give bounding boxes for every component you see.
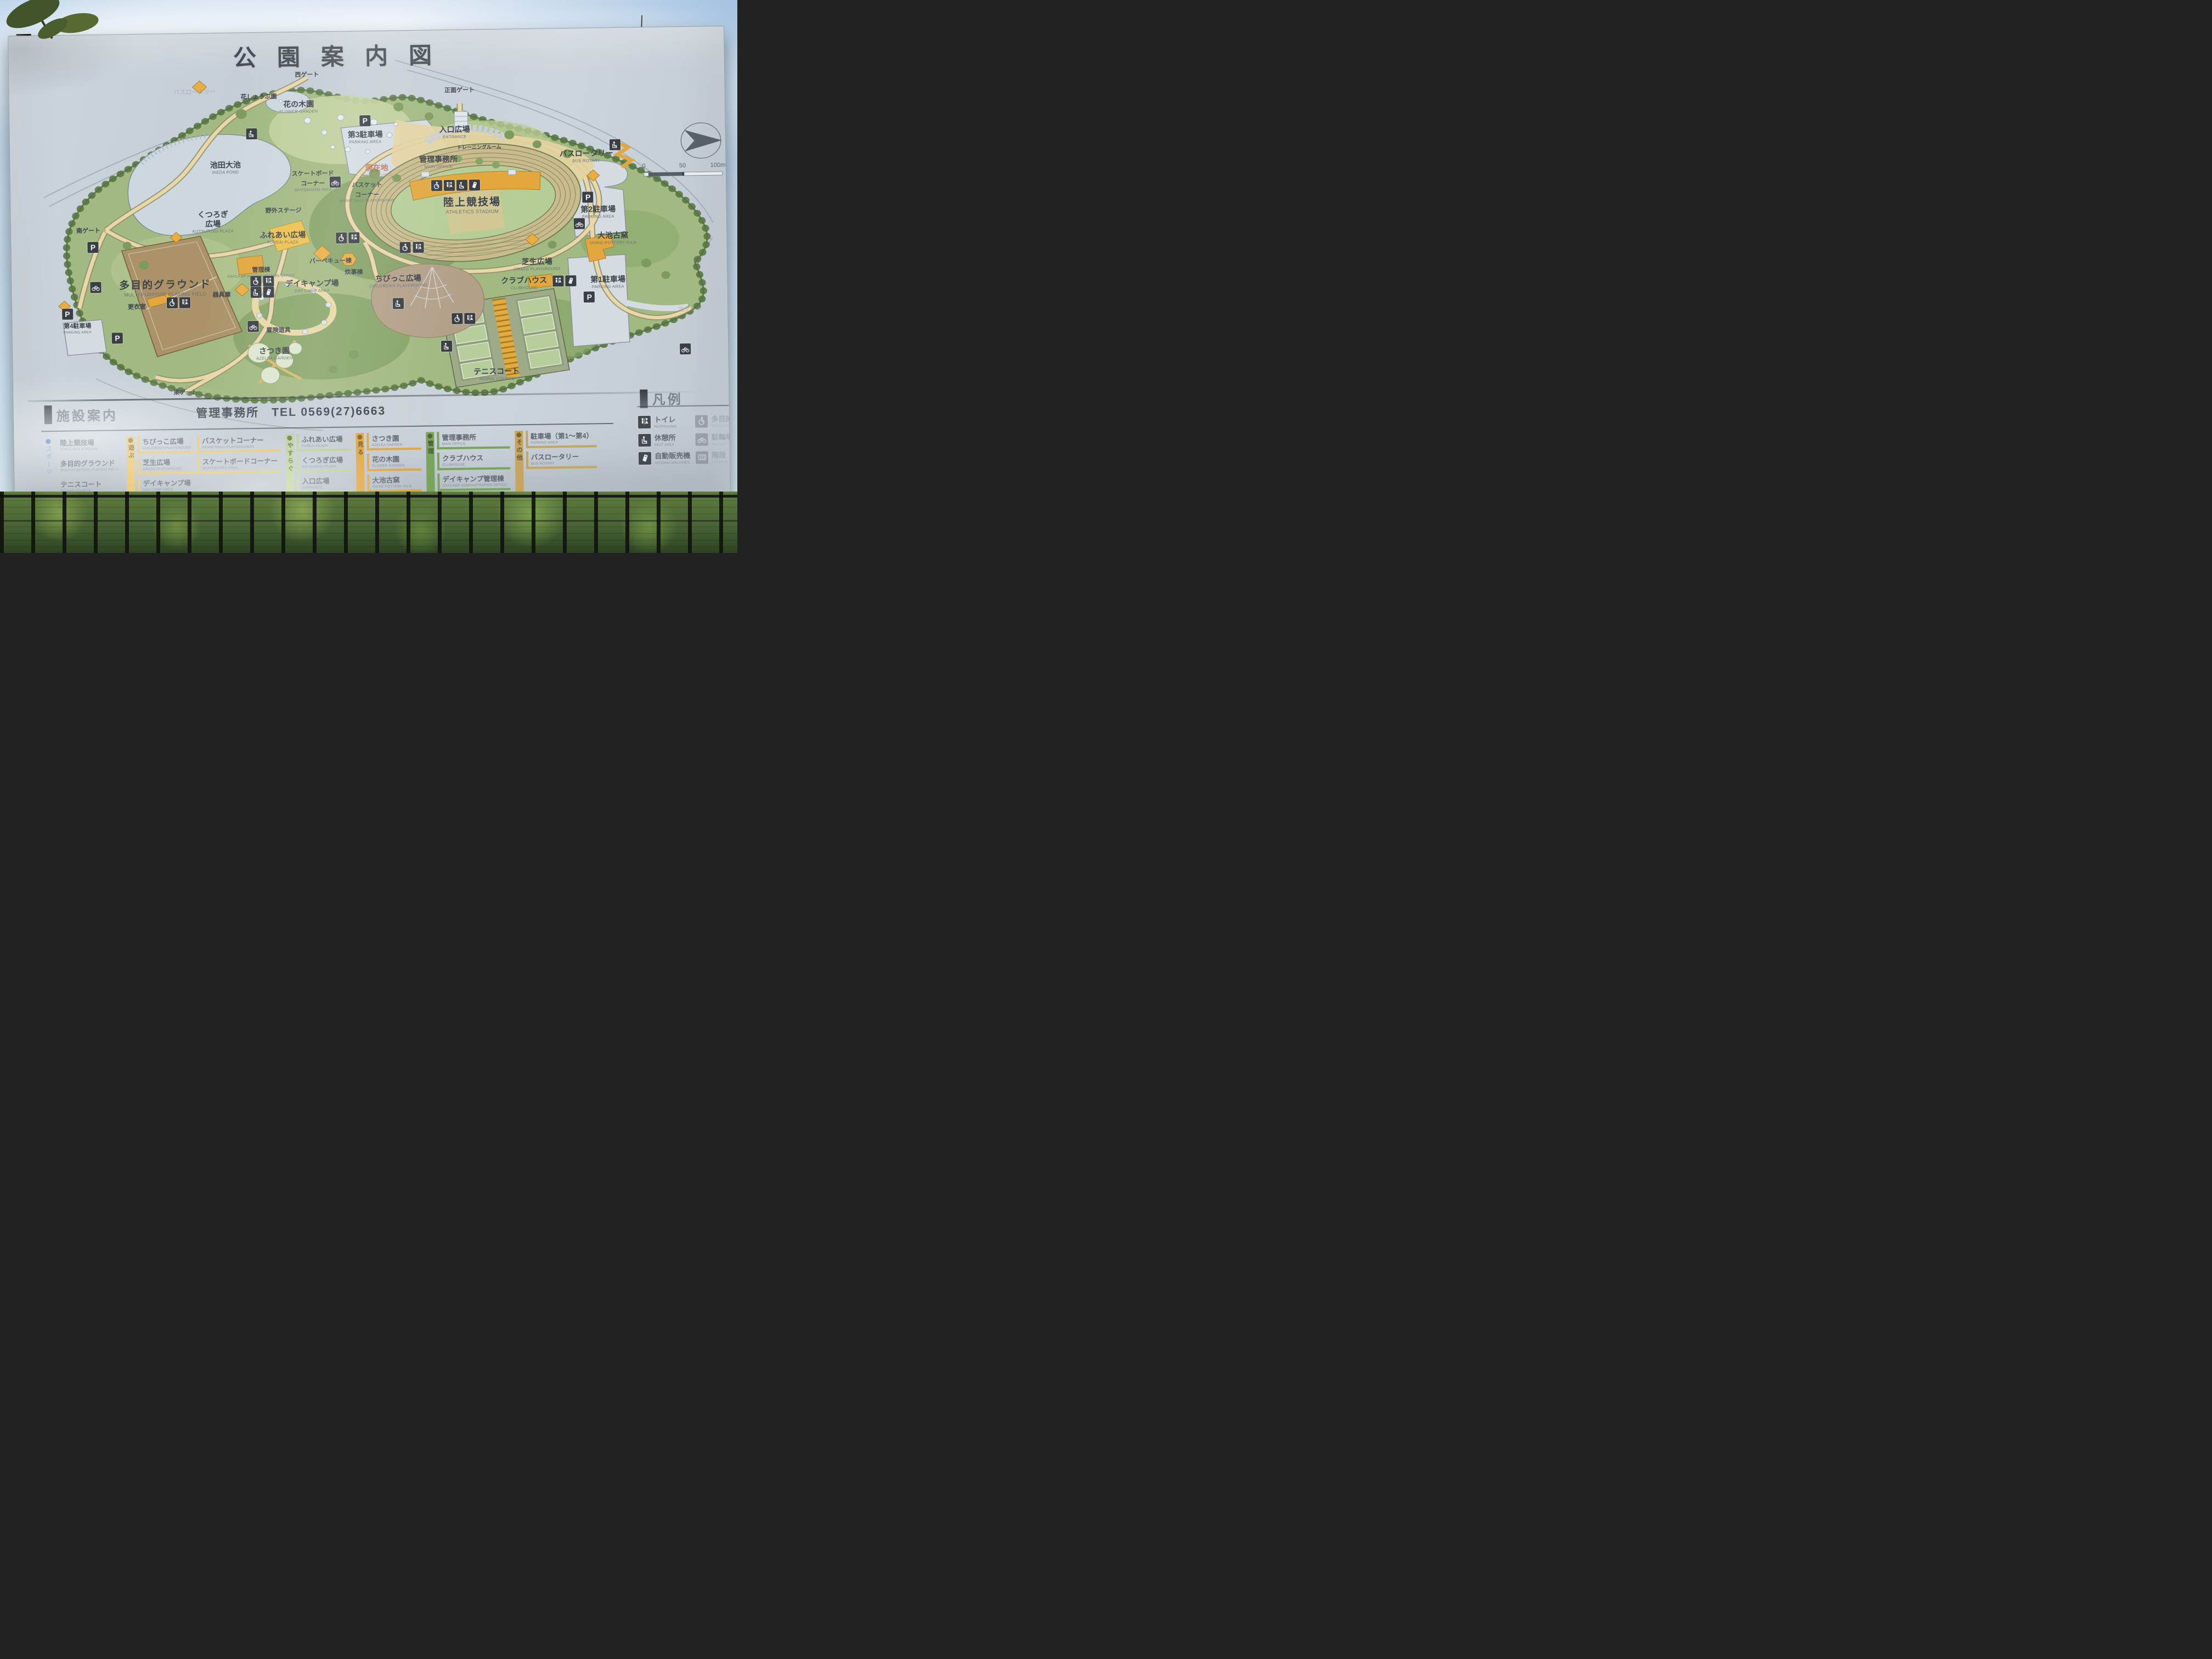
legend-item-jp: バスケットコーナー xyxy=(202,435,278,446)
label-jp: 第1駐車場 xyxy=(590,275,625,284)
legend-item-en: BASKETBALL PLAYGROUNDS xyxy=(202,445,278,450)
legend-item-jp: 陸上競技場 xyxy=(60,437,119,448)
rest-icon xyxy=(639,434,651,447)
map-label-outdoor-stage: 野外ステージ xyxy=(266,205,302,216)
map-label-pottery-kiln: 大池古窯OHIKE-POTTERY KILN xyxy=(589,230,636,245)
map-label-parking3: 第3駐車場PARKING AREA xyxy=(348,130,383,145)
sign-title: 公園案内図 xyxy=(223,37,453,74)
label-jp: 管理棟 xyxy=(252,267,270,273)
group-dot xyxy=(46,439,50,444)
group-dot xyxy=(287,436,292,441)
facility-guide-header: 施設案内 xyxy=(44,404,118,425)
label-jp: デイキャンプ場 xyxy=(285,279,339,288)
symbol-en: VENDING MACHINES xyxy=(654,461,690,465)
parking-icon: P xyxy=(583,191,594,202)
label-jp: 池田大池 xyxy=(210,160,241,170)
vending-icon xyxy=(566,275,577,286)
symbol-en: STAIRWAY xyxy=(712,460,729,464)
legend-item-en: CHILDREN'S PLAYGROUND xyxy=(143,446,191,450)
map-label-children-playground: ちびっこ広場CHILDREN'S PLAYGROUND xyxy=(369,274,427,289)
map-label-parking2: 第2駐車場PARKING AREA xyxy=(580,204,616,219)
wheelchair-icon xyxy=(695,415,708,427)
scale-label-mid: 50 xyxy=(679,162,686,169)
legend-group-やすらぐ: やすらぐふれあい広場FUREAI PLAZAくつろぎ広場KUTSUROGI PL… xyxy=(285,433,352,501)
group-color-bar: その他 xyxy=(515,431,524,498)
bike-icon xyxy=(574,218,585,229)
bike-icon xyxy=(329,177,340,188)
group-column: さつき園AZELEA GARDEN花の木園FLOWER GARDEN大池古窯OH… xyxy=(366,432,422,499)
toilet-icon xyxy=(444,180,455,191)
symbol-jp: トイレ xyxy=(654,415,675,424)
wheelchair-icon xyxy=(336,232,347,243)
symbol-column: トイレRESTROOMS休憩所REST AREA自動販売機VENDING MAC… xyxy=(638,415,690,465)
legend-item: ふれあい広場FUREAI PLAZA xyxy=(296,433,351,452)
symbol-jp: 休憩所 xyxy=(654,433,676,442)
toilet-icon xyxy=(348,232,359,243)
group-label: 管理 xyxy=(426,441,435,456)
label-jp: 花の木園 xyxy=(283,99,314,109)
map-label-tennis-courts: テニスコートTENNIS COURTS xyxy=(473,366,520,381)
legend-item-jp: デイキャンプ管理棟 xyxy=(442,473,507,484)
label-jp: 第4駐車場 xyxy=(64,323,91,330)
group-color-bar: スポーツ xyxy=(44,438,53,497)
symbol-row-toilet: トイレRESTROOMS xyxy=(638,415,690,429)
legend-item-en: GRASS PLAYGROUND xyxy=(143,467,191,471)
map-label-iris-garden: 花しょうぶ園 xyxy=(240,92,276,102)
map-label-cooking-hut: 炊事棟 xyxy=(345,267,363,277)
label-en: FUREAI PLAZA xyxy=(259,240,306,245)
label-en: GRASS PLAYGROUND xyxy=(513,267,560,272)
group-color-bar: やすらぐ xyxy=(285,434,295,500)
legend-item-jp: ちびっこ広場 xyxy=(142,436,191,447)
group-color-bar: 管理 xyxy=(426,432,435,499)
label-jp: さつき園 xyxy=(259,346,290,356)
header-mark xyxy=(640,389,648,408)
label-en: MAIN OFFICE xyxy=(419,164,458,169)
label-en: CLUBHOUSE xyxy=(501,286,547,291)
label-jp: 現在地 xyxy=(365,163,388,172)
symbol-text: 駐輪場BICYCLE PARKING xyxy=(712,432,731,446)
symbol-row-wheelchair: 多目的トイレSPECIAL NEEDS xyxy=(695,414,731,428)
office-phone: 管理事務所 TEL 0569(27)6663 xyxy=(196,402,386,421)
map-label-clubhouse: クラブハウスCLUBHOUSE xyxy=(501,276,547,291)
label-jp: 野外ステージ xyxy=(266,207,302,215)
legend-item: 多目的グラウンドMULTI-PURPOSE PLAYING FIELD xyxy=(55,458,122,476)
map-label-skateboard: スケートボード コーナーSKATEBOARD AREA xyxy=(291,168,334,193)
map-label-entrance-plaza: 入口広場ENTRANCE xyxy=(439,125,470,139)
map-label-bbq-hut: バーベキュー棟 xyxy=(309,255,352,266)
map-label-grass-playground: 芝生広場GRASS PLAYGROUND xyxy=(513,257,560,272)
label-jp: 陸上競技場 xyxy=(443,196,501,208)
header-mark xyxy=(44,405,52,424)
map-label-ikeda-pond: 池田大池IKEDA POND xyxy=(210,160,241,175)
vending-icon xyxy=(469,179,480,190)
label-jp: トレーニングルーム xyxy=(457,144,501,150)
symbol-jp: 自動販売機 xyxy=(654,452,690,460)
label-jp: バスロータリー xyxy=(173,89,216,96)
legend-item-jp: 花の木園 xyxy=(372,453,418,464)
map-label-kutsurogi-plaza: くつろぎ 広場KUTSUROGI PLAZA xyxy=(192,210,234,234)
label-en: PARKING AREA xyxy=(64,331,92,335)
label-en: ENTRANCE xyxy=(439,134,470,139)
legend-group-その他: その他駐車場（第1～第4）PARKING AREAバスロータリーBUS ROTA… xyxy=(515,430,597,498)
legend-item-en: MAIN OFFICE xyxy=(442,442,507,447)
bike-icon xyxy=(696,433,708,445)
symbol-text: トイレRESTROOMS xyxy=(654,415,676,429)
map-label-south-gate: 南ゲート xyxy=(76,225,100,236)
legend-item-en: ENTRANCE xyxy=(302,486,348,490)
parking-icon: P xyxy=(584,292,595,303)
legend-item-jp: 管理事務所 xyxy=(442,431,506,443)
legend-item-jp: 駐車場（第1～第4） xyxy=(531,430,593,442)
legend-item-en: DAYCAMP ADMINISTRATION OFFICE xyxy=(443,483,507,488)
wheelchair-icon xyxy=(452,313,462,324)
symbol-en: REST AREA xyxy=(654,443,676,447)
wheelchair-icon xyxy=(167,297,178,308)
symbol-column-faded: 多目的トイレSPECIAL NEEDS駐輪場BICYCLE PARKING階段S… xyxy=(695,414,731,464)
group-color-bar: 見る xyxy=(356,433,365,500)
label-jp: 南ゲート xyxy=(76,228,100,235)
legend-panel: 施設案内 管理事務所 TEL 0569(27)6663 凡例 スポーツ陸上競技場… xyxy=(13,392,730,503)
legend-item-en: OHIKE-POTTERY KILN xyxy=(373,484,419,489)
legend-item-en: MULTI-PURPOSE PLAYING FIELD xyxy=(60,468,119,472)
label-jp: 正面ゲート xyxy=(444,87,475,94)
symbol-text: 自動販売機VENDING MACHINES xyxy=(654,451,690,465)
legend-item-jp: デイキャンプ場 xyxy=(143,477,192,488)
legend-item-en: CLUBHOUSE xyxy=(442,462,507,467)
legend-item-jp: ふれあい広場 xyxy=(301,433,347,444)
label-en: SKATEBOARD AREA xyxy=(292,188,334,192)
legend-item-en: AZELEA GARDEN xyxy=(372,443,418,447)
legend-item-en: FLOWER GARDEN xyxy=(372,464,418,468)
map-label-athletics-stadium: 陸上競技場ATHLETICS STADIUM xyxy=(443,196,501,215)
symbol-row-vending: 自動販売機VENDING MACHINES xyxy=(639,451,690,465)
symbol-en: SPECIAL NEEDS xyxy=(712,424,731,428)
label-jp: 東ゲート xyxy=(173,390,198,397)
legend-item-jp: スケートボードコーナー xyxy=(202,455,278,467)
wheelchair-icon xyxy=(400,242,411,253)
label-jp: 冒険遊具 xyxy=(267,327,291,334)
facility-guide-title: 施設案内 xyxy=(57,404,118,425)
label-jp: 多目的グラウンド xyxy=(119,279,211,292)
label-en: YOU ARE HERE xyxy=(360,173,393,178)
legend-item-en: KUTSUROGI PLAZA xyxy=(302,465,348,469)
legend-item-jp: さつき園 xyxy=(371,432,417,443)
toilet-icon xyxy=(638,416,651,428)
label-jp: スケートボード コーナー xyxy=(291,171,334,188)
map-label-north-gate: 北ゲート xyxy=(678,303,702,314)
legend-item: デイキャンプ管理棟DAYCAMP ADMINISTRATION OFFICE xyxy=(437,473,510,492)
group-label: 見る xyxy=(356,442,364,457)
legend-item: スケートボードコーナーSKATEBOARD AREA xyxy=(197,455,281,474)
legend-item-jp: テニスコート xyxy=(60,478,119,489)
toilet-icon xyxy=(464,313,475,324)
legend-item: 花の木園FLOWER GARDEN xyxy=(367,453,421,471)
symbol-en: RESTROOMS xyxy=(654,425,677,429)
legend-item: 管理事務所MAIN OFFICE xyxy=(437,431,510,450)
rest-icon xyxy=(250,287,261,298)
label-en: MULTI-PURPOSE PLAYING FIELD xyxy=(119,291,211,297)
group-column: 駐車場（第1～第4）PARKING AREAバスロータリーBUS ROTARY xyxy=(526,430,597,498)
legend-item: 入口広場ENTRANCE xyxy=(297,475,351,493)
sign-board: 公園案内図 xyxy=(8,26,731,503)
label-jp: 第3駐車場 xyxy=(348,130,383,139)
label-en: PARKING AREA xyxy=(348,140,383,145)
legend-item: 駐車場（第1～第4）PARKING AREA xyxy=(526,430,596,449)
toilet-icon xyxy=(263,275,274,286)
legend-item-jp: クラブハウス xyxy=(442,452,507,464)
label-jp: 芝生広場 xyxy=(522,257,552,267)
map-label-day-camp: デイキャンプ場DAY CAMP AREA xyxy=(285,279,339,294)
legend-item: バスケットコーナーBASKETBALL PLAYGROUNDS xyxy=(197,435,281,453)
label-en: FLOWER GARDEN xyxy=(279,109,318,114)
group-column: ふれあい広場FUREAI PLAZAくつろぎ広場KUTSUROGI PLAZA入… xyxy=(296,433,352,500)
group-column: 陸上競技場ATHLETICS STADIUM多目的グラウンドMULTI-PURP… xyxy=(55,437,122,497)
vending-icon xyxy=(639,452,651,465)
map-label-parking1: 第1駐車場PARKING AREA xyxy=(590,275,625,290)
legend-item: 大池古窯OHIKE-POTTERY KILN xyxy=(367,474,421,492)
label-en: DAYCAMP ADMINISTRATION OFFICE xyxy=(228,274,295,279)
legend-item-jp: 入口広場 xyxy=(302,475,348,486)
rest-icon xyxy=(456,179,467,190)
map-label-locker-room: 更衣室 xyxy=(128,301,146,311)
legend-item-jp: 大池古窯 xyxy=(372,474,418,485)
photo-of-park-sign: 公園案内図 xyxy=(0,0,737,553)
legend-group-管理: 管理管理事務所MAIN OFFICEクラブハウスCLUBHOUSEデイキャンプ管… xyxy=(426,431,510,499)
symbol-row-rest: 休憩所REST AREA xyxy=(639,433,690,447)
map-label-bus-rotary-e: バスロータリーBUS ROTARY xyxy=(560,148,613,163)
rest-icon xyxy=(246,128,257,139)
symbol-legend: トイレRESTROOMS休憩所REST AREA自動販売機VENDING MAC… xyxy=(638,414,730,465)
label-en: AZELEA GARDEN xyxy=(256,356,293,361)
map-label-basketball: バスケット コーナーBASKETBALL PLAYGROUNDS xyxy=(340,179,394,203)
label-jp: 第2駐車場 xyxy=(580,204,616,213)
symbol-jp: 駐輪場 xyxy=(712,433,731,442)
legend-item-en: PARKING AREA xyxy=(531,441,593,445)
map-label-east-gate: 東ゲート xyxy=(173,387,198,398)
symbol-text: 多目的トイレSPECIAL NEEDS xyxy=(711,414,731,428)
bike-icon xyxy=(680,343,691,354)
label-jp: バーベキュー棟 xyxy=(309,257,352,264)
label-en: IKEDA POND xyxy=(210,170,241,175)
group-dot xyxy=(427,434,432,439)
symbol-row-stairs: 階段STAIRWAY xyxy=(696,450,731,464)
legend-group-見る: 見るさつき園AZELEA GARDEN花の木園FLOWER GARDEN大池古窯… xyxy=(356,432,422,500)
label-jp: 花しょうぶ園 xyxy=(240,94,276,101)
group-label: 遊ぶ xyxy=(126,444,135,460)
label-jp: ふれあい広場 xyxy=(259,230,306,239)
label-en: BUS ROTARY xyxy=(560,158,613,163)
group-label: スポーツ xyxy=(44,446,53,477)
parking-icon: P xyxy=(62,309,73,320)
map-label-main-gate: 正面ゲート xyxy=(444,84,475,95)
label-jp: ちびっこ広場 xyxy=(375,274,421,283)
fence xyxy=(0,492,737,553)
label-jp: テニスコート xyxy=(473,366,520,376)
wheelchair-icon xyxy=(250,275,261,286)
legend-item: ちびっこ広場CHILDREN'S PLAYGROUND xyxy=(137,436,194,454)
group-column: 管理事務所MAIN OFFICEクラブハウスCLUBHOUSEデイキャンプ管理棟… xyxy=(437,431,510,499)
rest-icon xyxy=(441,341,452,352)
legend-item: 芝生広場GRASS PLAYGROUND xyxy=(138,456,195,475)
symbol-text: 休憩所REST AREA xyxy=(654,433,676,447)
legend-item-jp: バスロータリー xyxy=(531,451,594,462)
label-jp: クラブハウス xyxy=(501,276,547,285)
legend-item: くつろぎ広場KUTSUROGI PLAZA xyxy=(297,454,351,472)
label-jp: 入口広場 xyxy=(439,125,470,134)
legend-item-en: SKATEBOARD AREA xyxy=(202,466,278,471)
label-jp: 器具庫 xyxy=(213,292,231,298)
label-en: DAY CAMP AREA xyxy=(285,289,339,294)
parking-icon: P xyxy=(87,241,98,252)
map-label-parking4: 第4駐車場PARKING AREA xyxy=(63,321,92,335)
map-label-multi-field: 多目的グラウンドMULTI-PURPOSE PLAYING FIELD xyxy=(119,279,211,298)
label-jp: バスケット コーナー xyxy=(352,182,382,199)
label-jp: 北ゲート xyxy=(678,306,702,313)
symbol-jp: 多目的トイレ xyxy=(711,414,731,423)
label-en: OHIKE-POTTERY KILN xyxy=(590,240,636,246)
legend-item-jp: 多目的グラウンド xyxy=(60,458,119,469)
legend-item-en: ATHLETICS STADIUM xyxy=(60,447,118,452)
label-en: ATHLETICS STADIUM xyxy=(443,208,501,215)
label-jp: 管理事務所 xyxy=(419,154,458,163)
label-jp: 炊事棟 xyxy=(345,269,363,276)
map-label-fureai-plaza: ふれあい広場FUREAI PLAZA xyxy=(259,230,306,245)
label-en: BASKETBALL PLAYGROUNDS xyxy=(340,199,394,204)
legend-item-en: BUS ROTARY xyxy=(531,461,594,466)
scale-label-start: 0 xyxy=(642,163,645,170)
symbol-row-bike: 駐輪場BICYCLE PARKING xyxy=(696,432,731,446)
legend-item: クラブハウスCLUBHOUSE xyxy=(437,452,510,471)
rest-icon xyxy=(610,139,620,150)
map-label-bus-rotary-nw: バスロータリー xyxy=(173,87,216,97)
scale-label-end: 100m xyxy=(710,162,726,168)
symbol-jp: 階段 xyxy=(712,451,726,459)
symbol-text: 階段STAIRWAY xyxy=(712,450,729,464)
parking-icon: P xyxy=(359,115,370,126)
bike-icon xyxy=(90,282,101,293)
label-en: KUTSUROGI PLAZA xyxy=(193,229,234,234)
legend-item: 陸上競技場ATHLETICS STADIUM xyxy=(55,437,122,455)
legend-item: さつき園AZELEA GARDEN xyxy=(366,432,421,450)
bike-icon xyxy=(247,321,258,332)
label-en: TENNIS COURTS xyxy=(473,376,520,382)
group-label: やすらぐ xyxy=(285,442,295,473)
label-jp: 更衣室 xyxy=(128,303,146,310)
group-dot xyxy=(128,438,133,443)
wheelchair-icon xyxy=(431,180,442,191)
map-label-you-are-here: 現在地YOU ARE HERE xyxy=(360,163,393,178)
rest-icon xyxy=(393,298,404,309)
map-label-flower-garden: 花の木園FLOWER GARDEN xyxy=(279,99,318,114)
map-label-training-room: トレーニングルーム xyxy=(457,142,501,152)
label-en: PARKING AREA xyxy=(590,285,625,290)
toilet-icon xyxy=(413,242,424,253)
toilet-icon xyxy=(552,275,563,286)
label-jp: くつろぎ 広場 xyxy=(198,210,228,228)
map-label-azalea-garden: さつき園AZELEA GARDEN xyxy=(256,346,293,361)
symbol-en: BICYCLE PARKING xyxy=(712,442,731,446)
legend-group-スポーツ: スポーツ陸上競技場ATHLETICS STADIUM多目的グラウンドMULTI-… xyxy=(44,437,122,497)
legend-item: バスロータリーBUS ROTARY xyxy=(526,451,597,470)
label-jp: バスロータリー xyxy=(560,148,613,157)
toilet-icon xyxy=(179,297,190,308)
label-jp: 大池古窯 xyxy=(597,230,628,240)
group-dot xyxy=(357,435,362,440)
legend-item-en: FUREAI PLAZA xyxy=(302,444,348,448)
map-label-equipment-store: 器具庫 xyxy=(212,290,230,300)
legend-item-jp: 芝生広場 xyxy=(143,456,191,467)
label-jp: 西ゲート xyxy=(295,71,319,78)
map-label-adventure-equip: 冒険遊具 xyxy=(266,325,290,335)
map-label-main-office: 管理事務所MAIN OFFICE xyxy=(419,154,458,169)
label-en: CHILDREN'S PLAYGROUND xyxy=(369,284,427,289)
group-dot xyxy=(516,433,521,438)
stairs-icon xyxy=(696,451,708,464)
group-label: その他 xyxy=(515,439,524,462)
parking-icon: P xyxy=(112,332,123,343)
legend-item-jp: くつろぎ広場 xyxy=(302,454,348,465)
label-en: PARKING AREA xyxy=(580,214,616,219)
vending-icon xyxy=(263,287,274,298)
